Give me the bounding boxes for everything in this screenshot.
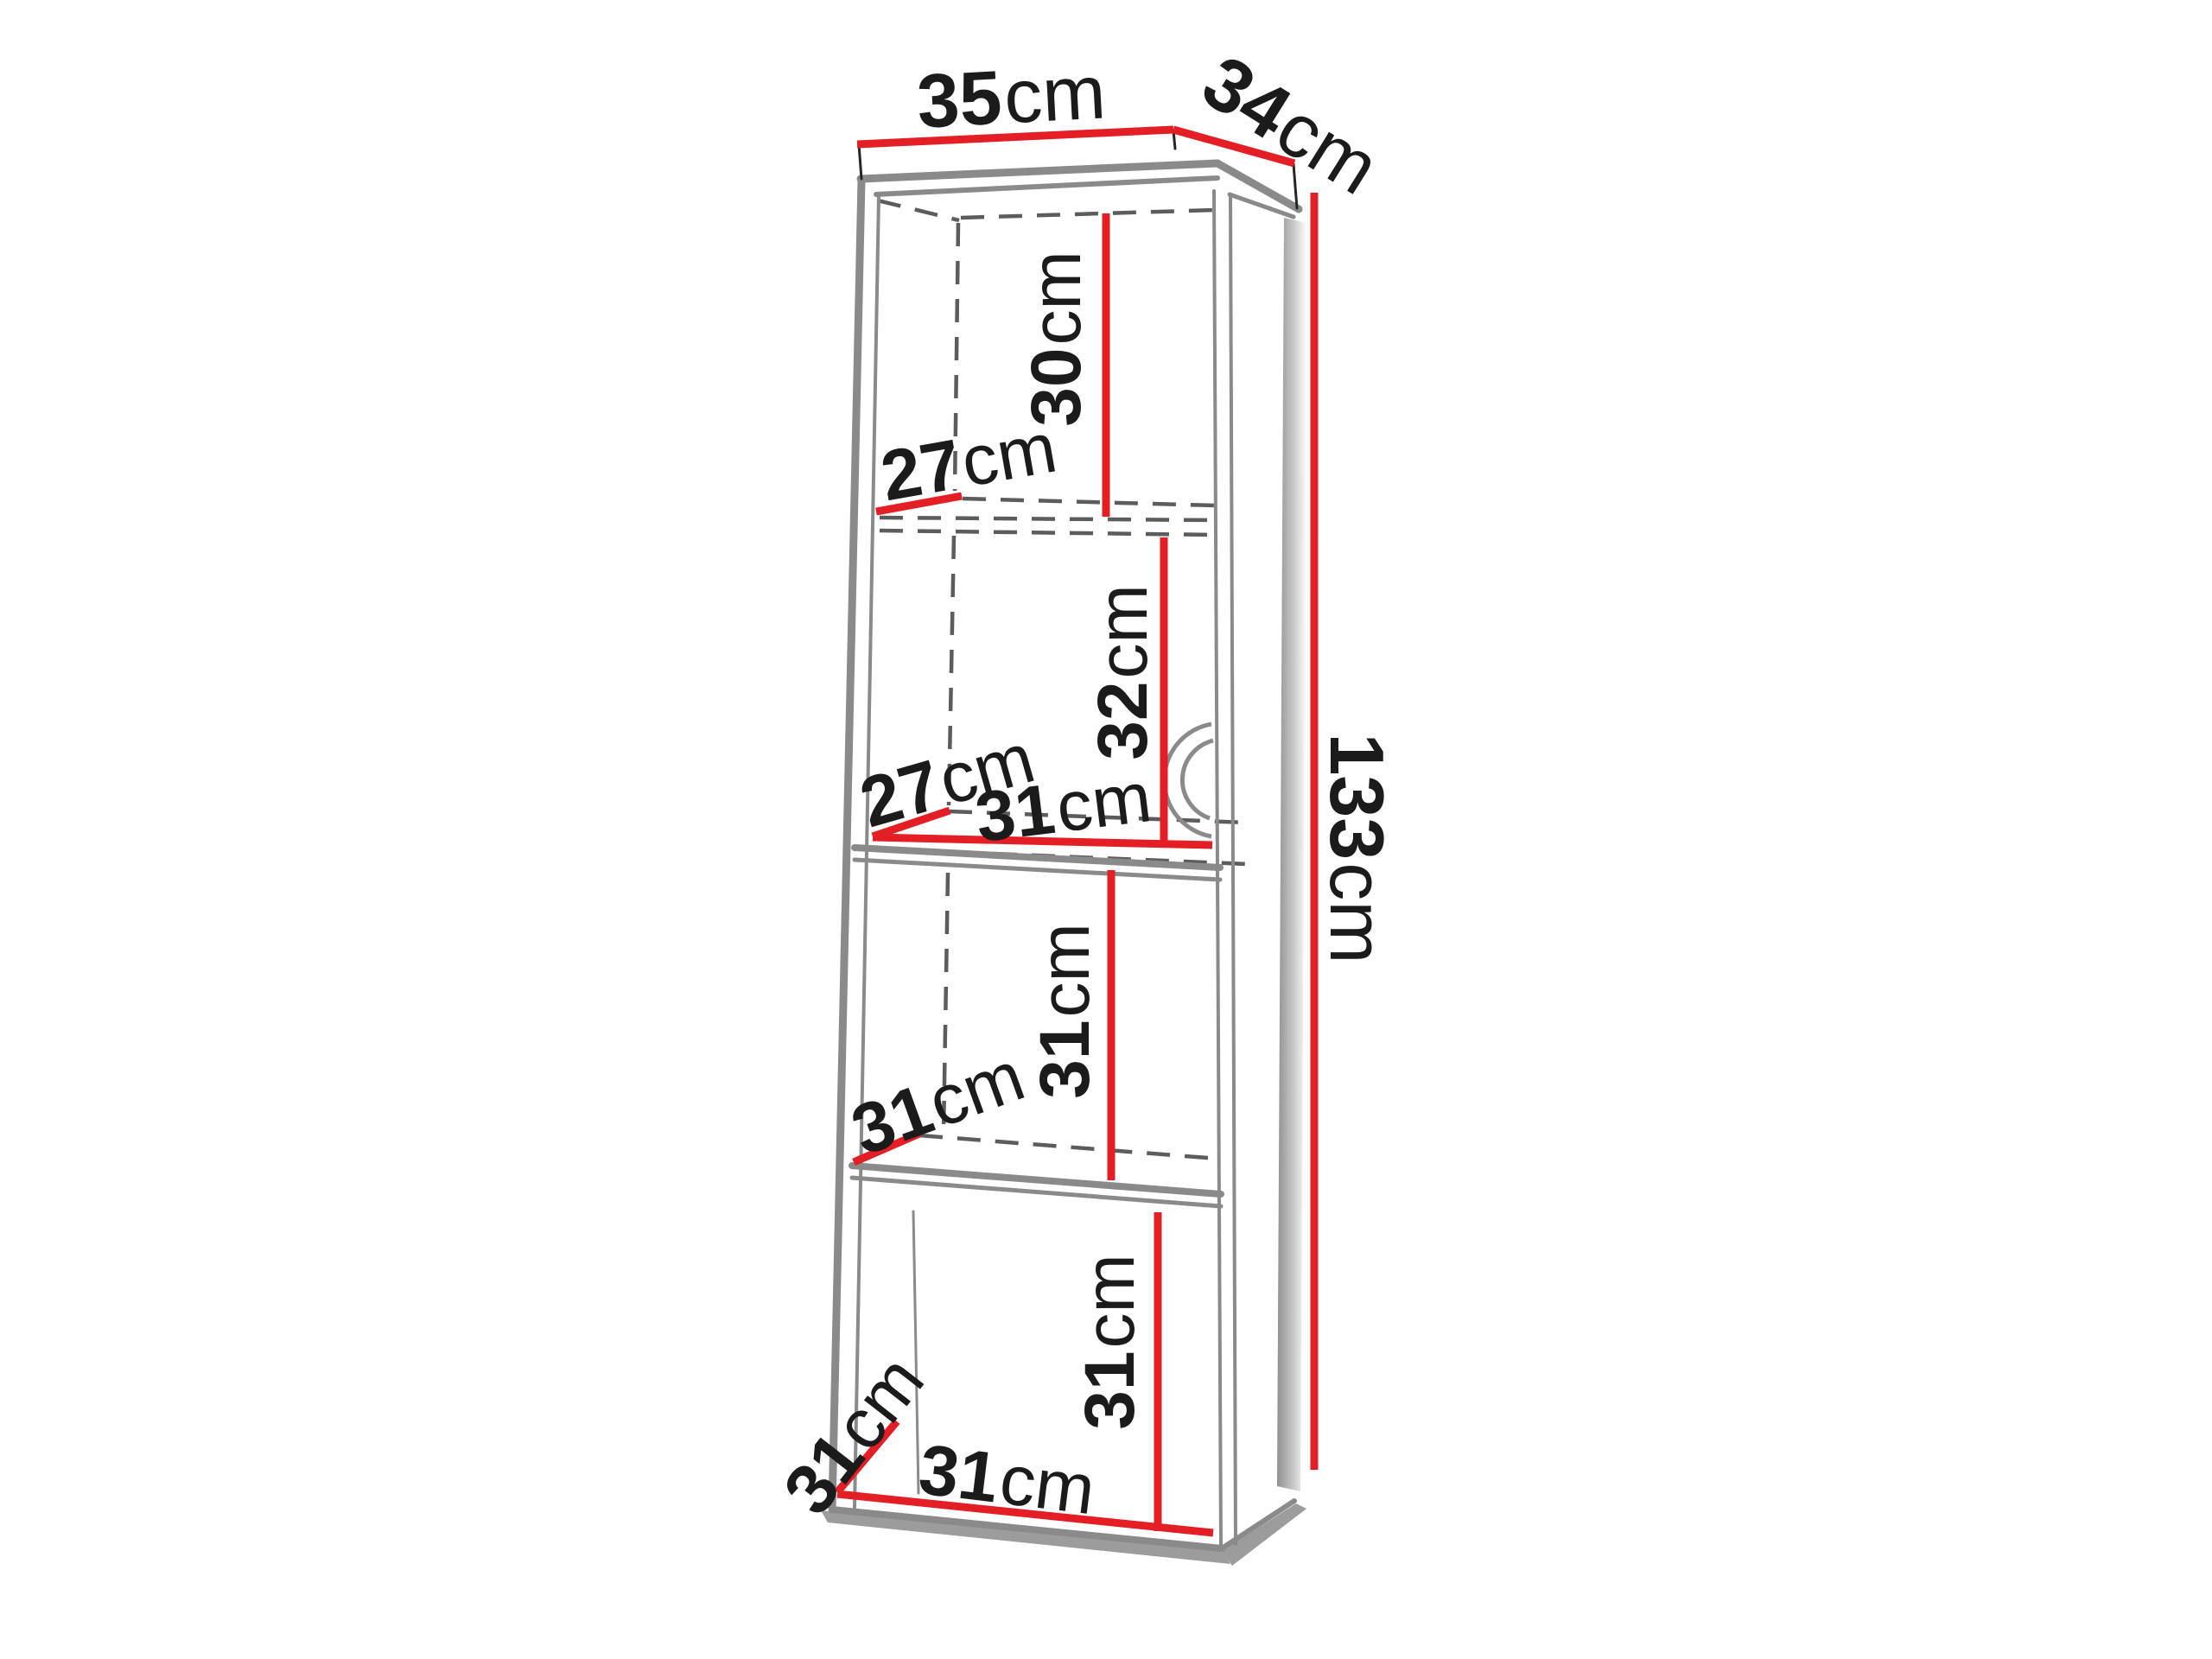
top-front-inner-edge bbox=[876, 178, 1217, 194]
label-top-depth: 34cm bbox=[1188, 38, 1394, 211]
label-total-height: 133cm bbox=[1314, 733, 1400, 963]
label-shelf3-depth: 31cm bbox=[842, 1037, 1033, 1171]
interior-top-left-depth-edge bbox=[878, 200, 959, 220]
top-front-edge bbox=[861, 163, 1217, 179]
label-section3-height: 31cm bbox=[1026, 923, 1104, 1099]
label-section1-height: 30cm bbox=[1017, 251, 1096, 427]
shelf3-back-edge bbox=[919, 1135, 1218, 1159]
bottom-compartment-back-corner bbox=[913, 1211, 918, 1493]
shelf1-front-bottom-edge bbox=[880, 531, 1215, 535]
side-panel-shading bbox=[1277, 218, 1307, 1491]
furniture-dimension-diagram: 35cm 34cm 133cm 30cm 27cm 32cm 27cm 31cm… bbox=[0, 0, 2212, 1659]
cable-hole-inner-arc bbox=[1182, 741, 1213, 818]
bookcase-diagram-canvas: 35cm 34cm 133cm 30cm 27cm 32cm 27cm 31cm… bbox=[0, 0, 2212, 1659]
shelf1-front-top-edge bbox=[880, 518, 1215, 520]
top-left-corner-line bbox=[859, 144, 861, 179]
label-bottom-width: 31cm bbox=[915, 1430, 1099, 1529]
side-panel-front-edge bbox=[1230, 195, 1236, 1544]
label-section2-height: 32cm bbox=[1084, 584, 1162, 760]
label-section4-height: 31cm bbox=[1071, 1254, 1149, 1430]
shelf1-back-edge bbox=[963, 499, 1215, 505]
label-top-width: 35cm bbox=[915, 48, 1108, 143]
label-shelf1-depth: 27cm bbox=[875, 408, 1062, 516]
interior-top-back-edge bbox=[961, 210, 1215, 218]
